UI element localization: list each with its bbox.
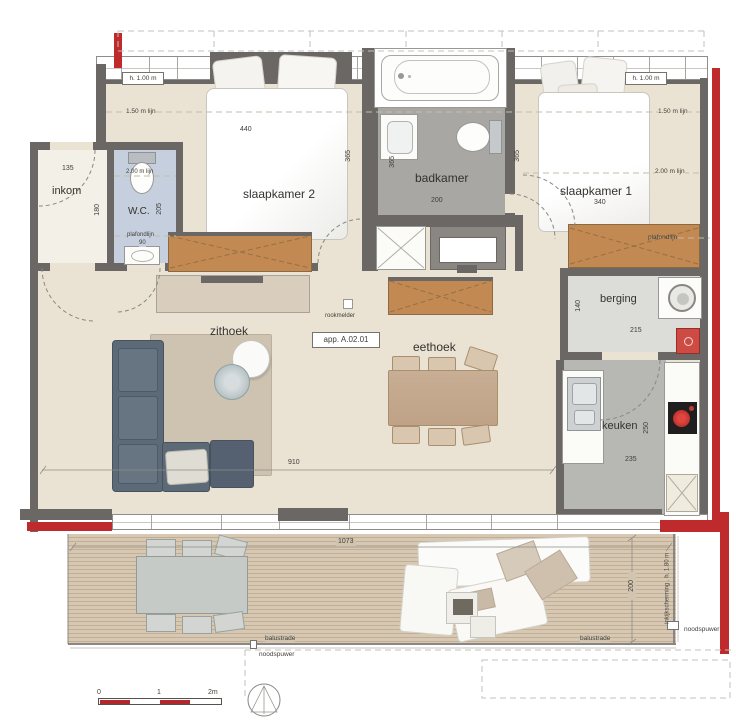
screen-label: inkijkscherming . h. 1.80 m <box>665 542 672 634</box>
outdoor-chair <box>146 539 176 557</box>
wall-bottom-left-stub <box>20 509 112 520</box>
outdoor-table <box>136 556 248 614</box>
sofa-pillow <box>165 449 209 486</box>
bathtub-tap <box>398 73 404 79</box>
scale-one: 1 <box>157 689 161 697</box>
window-mullion <box>491 515 492 529</box>
line-200-right: 2.00 m lijn <box>655 168 685 175</box>
lounge-sofa <box>396 534 606 640</box>
dining-chair <box>461 424 491 446</box>
red-wall-terrace-right-h <box>660 520 729 532</box>
wall-inkom-wc <box>107 150 114 266</box>
kitchen-sink-steel <box>567 377 601 431</box>
dim-badkamer-width: 200 <box>431 197 443 205</box>
apartment-label: app. A.02.01 <box>312 332 380 348</box>
wall-berging-bottom-a <box>560 352 602 360</box>
smoke-detector-icon <box>343 299 353 309</box>
toilet-badkamer <box>456 120 503 154</box>
height-note-text: h. 1.00 m <box>129 75 156 82</box>
dim-berging-width: 215 <box>630 327 642 335</box>
window-mullion <box>177 57 178 79</box>
dim-slaapkamer2-door: 365 <box>345 143 353 169</box>
kitchen-sink-unit <box>562 370 604 464</box>
line-150-left: 1.50 m lijn <box>126 108 156 115</box>
sink-basin <box>131 250 154 262</box>
north-compass-icon <box>248 684 280 716</box>
floor-plan: 135 inkom 180 2.00 m lijn W.C. 205 plafo… <box>0 0 736 725</box>
window-mullion <box>357 57 358 79</box>
scale-bar-segment <box>100 700 130 704</box>
dim-keuken-depth: 250 <box>643 415 651 441</box>
sofa-ottoman <box>210 440 254 488</box>
sideboard <box>156 275 310 313</box>
dim-inkom-depth: 180 <box>94 196 102 224</box>
dim-wc-plafond: 90 <box>139 240 146 247</box>
washing-machine <box>658 277 702 319</box>
bottom-window-band <box>112 514 708 530</box>
washer-drum <box>668 284 696 312</box>
wardrobe-eethoek <box>388 277 493 315</box>
cv-unit <box>430 226 506 270</box>
window-glass-line <box>113 522 707 523</box>
scale-bar-segment <box>160 700 190 704</box>
wall-berging-left <box>560 268 568 360</box>
height-note-left: h. 1.00 m <box>122 72 164 85</box>
balustrade-label-right: balustrade <box>580 635 610 642</box>
sofa-cushion <box>118 348 158 392</box>
dim-badkamer-depth2: 365 <box>514 143 522 169</box>
dim-terrace-depth: 200 <box>628 572 636 600</box>
room-label-wc: W.C. <box>128 207 150 217</box>
washer-door <box>677 293 689 305</box>
red-wall-terrace-left <box>27 522 112 531</box>
room-label-keuken: keuken <box>602 421 637 432</box>
noodspuwer-label-bottom: noodspuwer <box>259 651 294 658</box>
red-wall-right <box>712 68 720 520</box>
wall-west <box>30 142 38 532</box>
plafondlijn-wc: plafondlijn <box>127 232 154 239</box>
outdoor-chair <box>182 616 212 634</box>
dim-living-width: 910 <box>286 459 302 467</box>
electrical-box-dial <box>684 337 693 346</box>
bathtub <box>381 55 499 101</box>
wall-hall-b <box>95 263 127 271</box>
sofa-cushion <box>118 444 158 484</box>
dining-chair <box>428 428 456 446</box>
dim-slaapkamer1-width: 340 <box>594 199 606 207</box>
wall-bedroom1-door-stub <box>515 215 523 271</box>
bath-niche <box>374 48 507 108</box>
room-label-slaapkamer2: slaapkamer 2 <box>243 188 315 200</box>
cooktop-burner-small <box>689 406 694 411</box>
duvet <box>538 92 650 232</box>
noodspuwer-label-right: noodspuwer <box>684 626 719 633</box>
sink-bowl <box>572 383 597 405</box>
line-150-right: 1.50 m lijn <box>658 108 688 115</box>
toilet-tank <box>489 120 502 154</box>
electrical-box <box>676 328 700 354</box>
wall-hall-a <box>30 263 50 271</box>
dim-slaapkamer2-width: 440 <box>240 126 252 134</box>
sliding-door-panel[interactable] <box>278 508 348 521</box>
window-mullion <box>349 515 350 529</box>
room-label-inkom: inkom <box>52 186 81 197</box>
sink-badkamer <box>380 114 418 160</box>
red-wall-terrace-right-v <box>720 512 729 654</box>
window-mullion <box>151 515 152 529</box>
wall-inkom-top-b <box>93 142 183 150</box>
height-note-text: h. 1.00 m <box>632 75 659 82</box>
window-mullion <box>557 515 558 529</box>
sink-wc <box>124 246 160 265</box>
window-mullion <box>685 57 686 79</box>
outdoor-chair <box>146 614 176 632</box>
dim-inkom-width: 135 <box>62 165 74 173</box>
room-label-zithoek: zithoek <box>210 325 248 337</box>
wardrobe-hall <box>168 232 312 272</box>
line-200-wc: 2.00 m lijn <box>126 169 153 176</box>
height-note-right: h. 1.00 m <box>625 72 667 85</box>
toilet-bowl <box>130 162 154 194</box>
dining-table <box>388 370 498 426</box>
kitchen-cabinet <box>666 474 698 512</box>
room-label-berging: berging <box>600 294 637 305</box>
dim-keuken-width: 235 <box>625 456 637 464</box>
cooktop <box>668 402 697 434</box>
sideboard-handle <box>201 276 263 283</box>
dim-wc-depth: 205 <box>156 195 164 223</box>
dim-berging-depth: 140 <box>575 293 583 319</box>
smoke-detector-label: rookmelder <box>325 313 355 320</box>
room-label-eethoek: eethoek <box>413 341 456 353</box>
tray <box>453 599 473 615</box>
window-mullion <box>221 515 222 529</box>
wall-left-facade <box>96 64 106 148</box>
cv-panel <box>439 237 497 263</box>
dining-chair <box>392 426 420 444</box>
cooktop-burner <box>673 410 690 427</box>
sink-bowl <box>574 410 595 425</box>
red-wall-top-left <box>114 33 122 68</box>
toilet-bowl <box>456 122 490 152</box>
dim-badkamer-depth: 365 <box>389 149 397 175</box>
duvet <box>206 88 348 240</box>
bed-2 <box>206 54 348 240</box>
scale-two: 2m <box>208 689 218 697</box>
cv-tab <box>457 265 477 273</box>
dim-terrace-width: 1073 <box>336 538 356 546</box>
wardrobe-slaapkamer1 <box>568 224 700 268</box>
bathtub-drain <box>408 75 411 78</box>
coffee-table-gray <box>214 364 250 400</box>
balustrade-label-left: balustrade <box>265 635 295 642</box>
room-label-badkamer: badkamer <box>415 172 468 184</box>
sofa-cushion <box>118 396 158 440</box>
scale-zero: 0 <box>97 689 101 697</box>
outdoor-side-table <box>470 616 496 638</box>
spout-marker <box>250 640 257 649</box>
wall-bedroom1-bottom <box>560 268 708 276</box>
plafondlijn-right: plafondlijn <box>648 234 677 241</box>
room-label-slaapkamer1: slaapkamer 1 <box>560 185 632 197</box>
technical-shaft <box>376 226 426 270</box>
apartment-label-text: app. A.02.01 <box>324 335 369 344</box>
scale-bar <box>98 698 222 705</box>
window-mullion <box>426 515 427 529</box>
